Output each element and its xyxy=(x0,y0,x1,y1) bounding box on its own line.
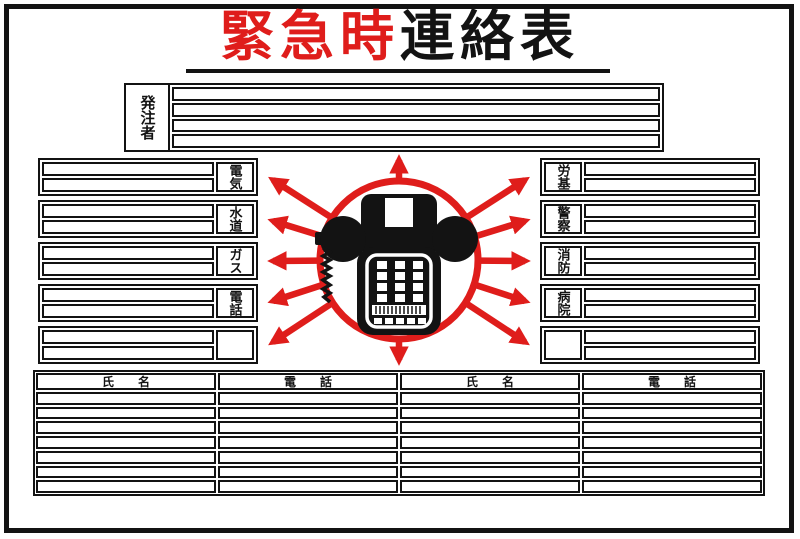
directory-header-row: 氏 名 電 話 氏 名 電 話 xyxy=(36,373,762,390)
contact-label-blank xyxy=(216,330,254,360)
title-underline xyxy=(186,69,610,73)
directory-header-name-1: 氏 名 xyxy=(36,373,216,390)
directory-cell xyxy=(36,451,216,464)
directory-cell xyxy=(36,466,216,479)
contact-lines xyxy=(42,330,214,360)
contact-box-police: 警察 xyxy=(540,200,760,238)
orderer-label: 発注者 xyxy=(126,85,170,150)
orderer-row xyxy=(172,87,660,101)
blank-line xyxy=(42,262,214,276)
directory-cell xyxy=(36,436,216,449)
blank-line xyxy=(42,178,214,192)
blank-line xyxy=(584,220,756,234)
blank-line xyxy=(42,162,214,176)
emergency-call-graphic xyxy=(263,148,535,372)
blank-line xyxy=(42,220,214,234)
contact-lines xyxy=(584,288,756,318)
directory-cell xyxy=(218,451,398,464)
title-red: 緊急時 xyxy=(220,7,400,67)
contact-box-water: 水道 xyxy=(38,200,258,238)
directory-cell xyxy=(582,480,762,493)
directory-row xyxy=(36,436,762,449)
contact-label-telephone: 電話 xyxy=(216,288,254,318)
contact-lines xyxy=(584,162,756,192)
directory-cell xyxy=(36,392,216,405)
directory-cell xyxy=(400,421,580,434)
contact-box-blank-right xyxy=(540,326,760,364)
directory-header-phone-1: 電 話 xyxy=(218,373,398,390)
phone-bottom-keys xyxy=(374,318,426,324)
contact-label-water: 水道 xyxy=(216,204,254,234)
directory-cell xyxy=(582,421,762,434)
page-title: 緊急時連絡表 xyxy=(0,10,800,65)
directory-cell xyxy=(218,392,398,405)
directory-cell xyxy=(218,466,398,479)
directory-header-phone-2: 電 話 xyxy=(582,373,762,390)
contact-label-police: 警察 xyxy=(544,204,582,234)
blank-line xyxy=(584,262,756,276)
blank-line xyxy=(584,288,756,302)
directory-cell xyxy=(400,466,580,479)
directory-cell xyxy=(400,480,580,493)
blank-line xyxy=(584,304,756,318)
blank-line xyxy=(42,346,214,360)
blank-line xyxy=(584,346,756,360)
directory-cell xyxy=(582,392,762,405)
directory-cell xyxy=(218,480,398,493)
directory-cell xyxy=(400,407,580,420)
contact-label-electricity: 電気 xyxy=(216,162,254,192)
contact-box-gas: ガス xyxy=(38,242,258,280)
blank-line xyxy=(584,330,756,344)
directory-cell xyxy=(400,436,580,449)
contact-box-fire: 消防 xyxy=(540,242,760,280)
contact-label-fire: 消防 xyxy=(544,246,582,276)
contact-lines xyxy=(584,246,756,276)
orderer-row xyxy=(172,134,660,148)
blank-line xyxy=(584,246,756,260)
blank-line xyxy=(42,330,214,344)
contact-lines xyxy=(42,204,214,234)
contact-box-blank-left xyxy=(38,326,258,364)
directory-row xyxy=(36,421,762,434)
directory-row xyxy=(36,451,762,464)
blank-line xyxy=(42,246,214,260)
contact-box-telephone: 電話 xyxy=(38,284,258,322)
contact-lines xyxy=(42,288,214,318)
blank-line xyxy=(42,204,214,218)
directory-row xyxy=(36,480,762,493)
orderer-rows xyxy=(170,85,662,150)
directory-table: 氏 名 電 話 氏 名 電 話 xyxy=(33,370,765,496)
directory-cell xyxy=(582,407,762,420)
directory-cell xyxy=(218,436,398,449)
directory-body xyxy=(36,392,762,493)
contact-lines xyxy=(584,330,756,360)
contact-label-blank xyxy=(544,330,582,360)
blank-line xyxy=(42,288,214,302)
contact-lines xyxy=(584,204,756,234)
directory-cell xyxy=(582,466,762,479)
directory-cell xyxy=(36,421,216,434)
directory-cell xyxy=(36,480,216,493)
directory-row xyxy=(36,466,762,479)
blank-line xyxy=(584,178,756,192)
directory-cell xyxy=(218,421,398,434)
directory-row xyxy=(36,392,762,405)
directory-cell xyxy=(218,407,398,420)
orderer-box: 発注者 xyxy=(124,83,664,152)
directory-row xyxy=(36,407,762,420)
contact-label-gas: ガス xyxy=(216,246,254,276)
orderer-row xyxy=(172,103,660,117)
contact-label-hospital: 病院 xyxy=(544,288,582,318)
directory-header-name-2: 氏 名 xyxy=(400,373,580,390)
blank-line xyxy=(584,162,756,176)
directory-cell xyxy=(400,451,580,464)
directory-cell xyxy=(36,407,216,420)
directory-cell xyxy=(400,392,580,405)
directory-cell xyxy=(582,436,762,449)
blank-line xyxy=(42,304,214,318)
contact-label-labor-office: 労基 xyxy=(544,162,582,192)
contact-box-hospital: 病院 xyxy=(540,284,760,322)
directory-cell xyxy=(582,451,762,464)
contact-box-labor-office: 労基 xyxy=(540,158,760,196)
orderer-row xyxy=(172,119,660,133)
contact-lines xyxy=(42,162,214,192)
title-black: 連絡表 xyxy=(400,7,580,67)
blank-line xyxy=(584,204,756,218)
contact-lines xyxy=(42,246,214,276)
contact-box-electricity: 電気 xyxy=(38,158,258,196)
